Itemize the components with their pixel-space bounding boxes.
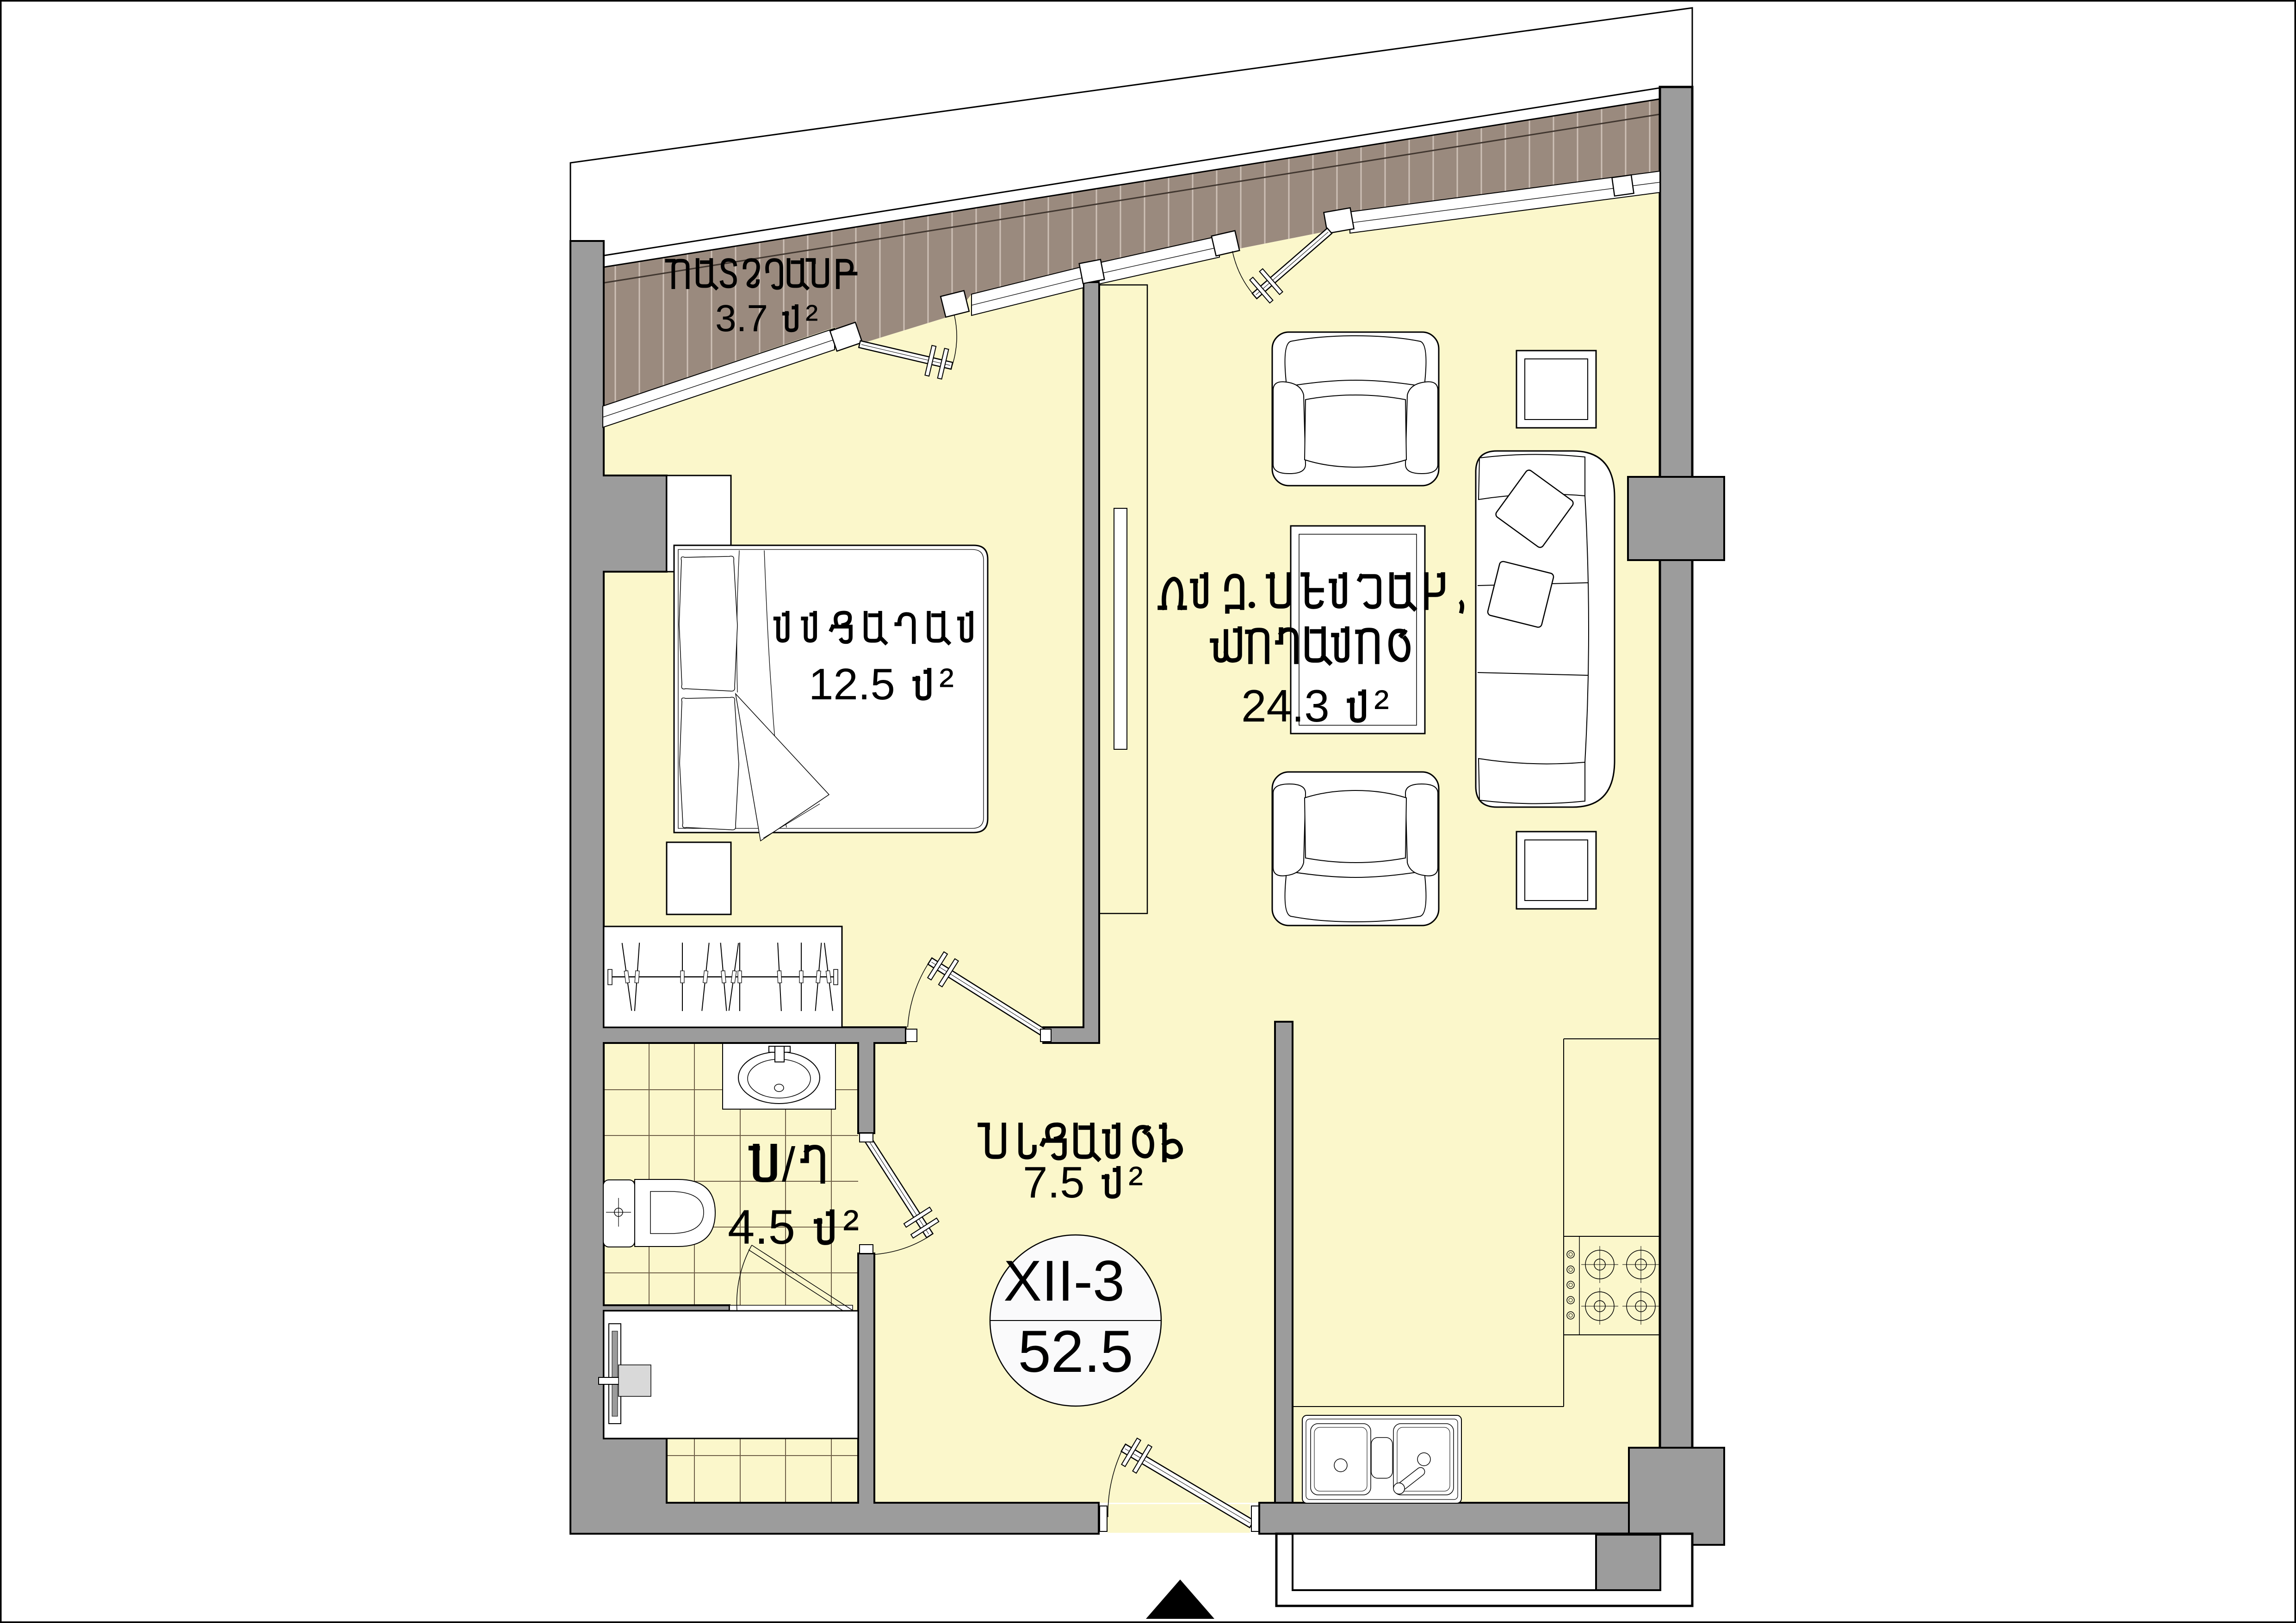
svg-text:/: / xyxy=(782,1138,796,1192)
svg-text:24.3: 24.3 xyxy=(1241,680,1330,731)
svg-text:7.5: 7.5 xyxy=(1023,1158,1084,1207)
svg-text:²: ² xyxy=(805,297,818,339)
svg-text:²: ² xyxy=(939,660,954,709)
svg-text:3.7: 3.7 xyxy=(715,297,768,339)
svg-text:²: ² xyxy=(1374,680,1389,731)
svg-text:12.5: 12.5 xyxy=(809,660,895,709)
svg-text:52.5: 52.5 xyxy=(1018,1319,1133,1385)
svg-text:²: ² xyxy=(843,1200,859,1254)
svg-text:XII-3: XII-3 xyxy=(1003,1249,1125,1313)
svg-text:4.5: 4.5 xyxy=(728,1200,795,1254)
svg-text:²: ² xyxy=(1128,1158,1143,1207)
